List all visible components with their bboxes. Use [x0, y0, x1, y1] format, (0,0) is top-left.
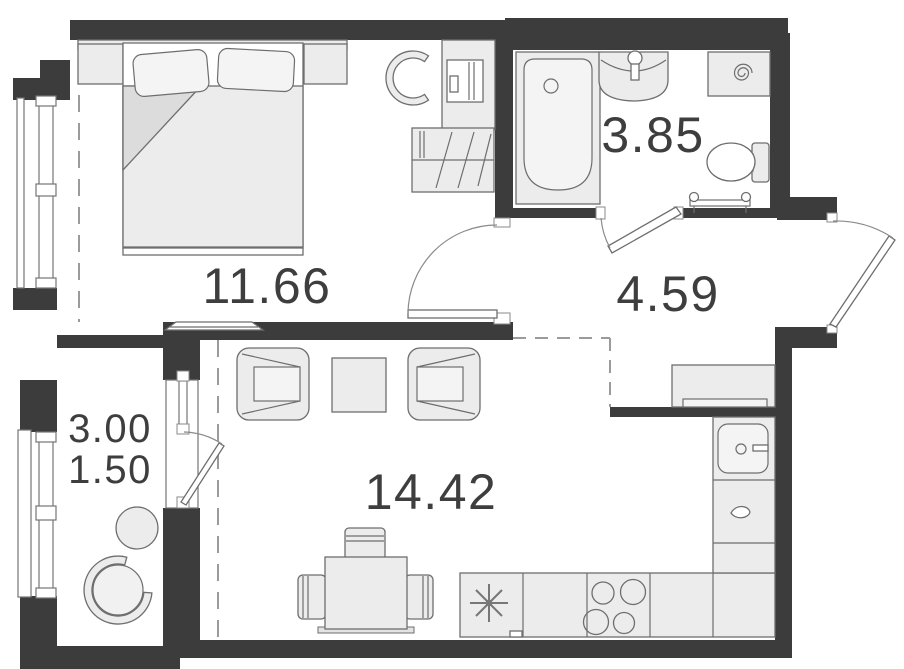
bedroom-area-label: 11.66: [203, 258, 332, 314]
door-swing-icon: [833, 221, 893, 238]
kitchen-sink-icon: [718, 424, 768, 473]
kitchen-counter-icon: [460, 573, 775, 637]
door-leaf: [408, 310, 497, 318]
nightstand-icon: [304, 44, 347, 84]
hallway-cabinet-icon: [672, 365, 775, 407]
pillow-icon: [217, 48, 295, 92]
fridge-icon-center: [486, 600, 492, 606]
door-leaf: [608, 207, 681, 253]
balcony-furniture: [84, 507, 158, 624]
balcony-chair-icon: [84, 556, 152, 624]
pillow-icon: [132, 49, 209, 97]
tv-console-icon: [165, 322, 263, 330]
armchair-icon: [237, 348, 309, 420]
desk-chair-icon: [386, 51, 429, 105]
armchair-icon: [408, 348, 480, 420]
balcony-area-label-reduced: 1.50: [68, 448, 152, 492]
living-kitchen-area-label: 14.42: [365, 464, 498, 520]
kitchen-column-cabinets: [713, 417, 775, 573]
double-bed-icon: [123, 43, 303, 255]
bathtub-icon: [516, 52, 600, 204]
desk-icon: [442, 40, 495, 130]
washing-machine-icon: [708, 52, 770, 96]
dining-chair-icon: [298, 575, 326, 619]
door-swing-icon: [408, 225, 497, 314]
door-leaf: [830, 236, 895, 327]
entry-door: [827, 213, 895, 333]
bathroom-door: [596, 207, 683, 253]
floor-plan-drawing: 11.66 3.85 4.59 14.42 3.00 1.50: [0, 0, 904, 669]
floor-plan: 11.66 3.85 4.59 14.42 3.00 1.50: [0, 0, 904, 669]
balcony-door: [166, 371, 224, 508]
bathroom-area-label: 3.85: [601, 107, 704, 163]
dining-table-icon: [325, 557, 407, 629]
balcony-area-label-total: 3.00: [68, 407, 152, 451]
sink-icon: [599, 51, 668, 101]
round-table-icon: [116, 507, 158, 549]
dining-chair-icon: [405, 575, 433, 619]
kitchen: [460, 417, 775, 637]
bedroom-window-icon: [17, 96, 56, 288]
bedroom-door: [408, 218, 510, 324]
coffee-table-icon: [332, 358, 386, 412]
nightstand-icon: [78, 44, 123, 84]
dining-set: [298, 528, 433, 633]
wardrobe-icon: [412, 128, 494, 192]
toilet-icon: [707, 143, 769, 182]
balcony-window-icon: [18, 430, 56, 598]
dining-chair-icon: [345, 528, 385, 560]
door-swing-icon: [601, 218, 610, 248]
hallway-area-label: 4.59: [616, 266, 719, 322]
